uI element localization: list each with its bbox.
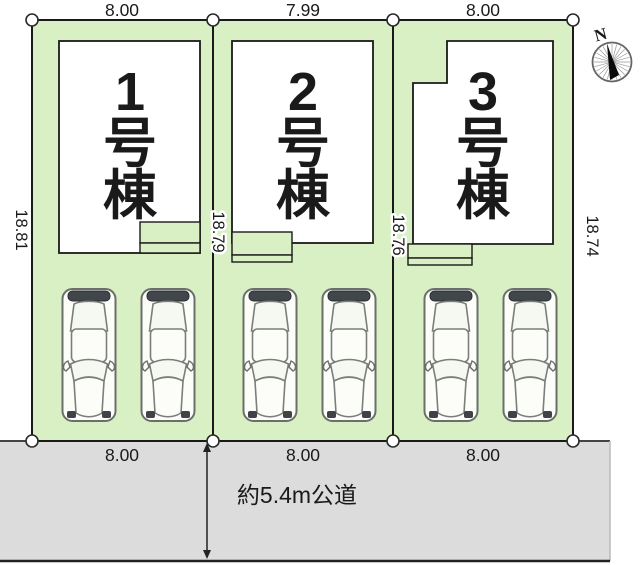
vertex-marker bbox=[387, 14, 399, 26]
building-1-label-number: 1 bbox=[115, 62, 145, 122]
boundary-2-3-dimension: 18.76 bbox=[389, 214, 407, 255]
boundary-1-2-dimension: 18.79 bbox=[209, 211, 227, 252]
building-1-label-gou: 号 bbox=[103, 114, 157, 174]
car-icon bbox=[63, 289, 116, 421]
plot-1-bottom-dimension: 8.00 bbox=[105, 445, 139, 465]
right-side-dimension: 18.74 bbox=[583, 215, 601, 256]
building-1-label-tou: 棟 bbox=[103, 166, 158, 226]
road-label: 約5.4m公道 bbox=[237, 482, 357, 508]
car-icon bbox=[142, 289, 195, 421]
compass-icon: N bbox=[592, 24, 631, 82]
building-3-label-number: 3 bbox=[468, 62, 498, 122]
car-icon bbox=[323, 289, 376, 421]
car-icon bbox=[244, 289, 297, 421]
plot-3-bottom-dimension: 8.00 bbox=[466, 445, 500, 465]
site-plan: 1 号 棟 2 号 棟 3 号 棟 8.00 7.99 8.00 18.81 bbox=[0, 0, 640, 565]
vertex-marker bbox=[26, 435, 38, 447]
vertex-marker bbox=[26, 14, 38, 26]
compass-north-label: N bbox=[592, 24, 609, 46]
car-icon bbox=[504, 289, 557, 421]
plot-1-top-dimension: 8.00 bbox=[105, 0, 139, 20]
building-2-step bbox=[232, 255, 292, 262]
building-1-step bbox=[140, 243, 200, 253]
plot-3-top-dimension: 8.00 bbox=[466, 0, 500, 20]
building-2-porch bbox=[232, 232, 292, 255]
vertex-marker bbox=[207, 14, 219, 26]
building-3-label-gou: 号 bbox=[456, 114, 510, 174]
building-2-label-tou: 棟 bbox=[276, 166, 331, 226]
plot-2-top-dimension: 7.99 bbox=[286, 0, 320, 20]
left-side-dimension: 18.81 bbox=[12, 209, 30, 250]
vertex-marker bbox=[567, 14, 579, 26]
plot-2-bottom-dimension: 8.00 bbox=[286, 445, 320, 465]
building-3-label-tou: 棟 bbox=[456, 166, 511, 226]
building-2-label-gou: 号 bbox=[276, 114, 330, 174]
building-3-porch bbox=[408, 244, 472, 258]
site-plan-canvas: 1 号 棟 2 号 棟 3 号 棟 8.00 7.99 8.00 18.81 bbox=[0, 0, 640, 565]
building-3-step bbox=[408, 258, 472, 265]
car-icon bbox=[425, 289, 478, 421]
top-dimensions: 8.00 7.99 8.00 bbox=[105, 0, 500, 20]
vertex-marker bbox=[207, 435, 219, 447]
vertex-marker bbox=[387, 435, 399, 447]
vertex-marker bbox=[567, 435, 579, 447]
building-2-label-number: 2 bbox=[288, 62, 318, 122]
